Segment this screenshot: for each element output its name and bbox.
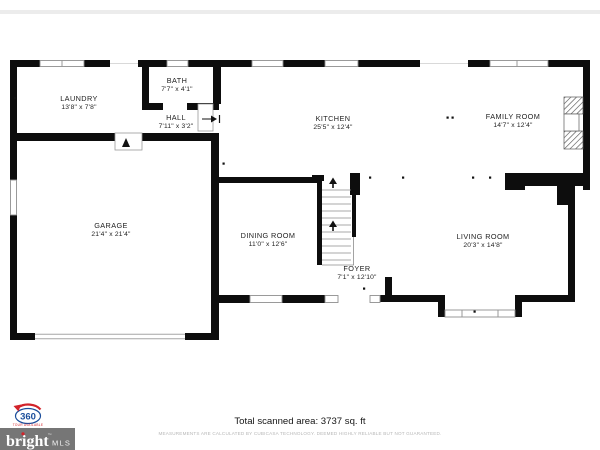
room-label-foyer: FOYER 7'1" x 12'10" xyxy=(337,264,377,281)
brand-dot xyxy=(21,432,24,435)
fireplace-icon xyxy=(564,97,583,149)
mls-text: MLS xyxy=(52,439,71,448)
bright-mls-logo: bright ™ MLS xyxy=(0,428,75,450)
wall-segment xyxy=(142,133,219,141)
room-label-kitchen: KITCHEN 25'5" x 12'4" xyxy=(313,114,353,131)
wall-segment xyxy=(515,295,522,317)
wall-segment xyxy=(350,173,360,195)
wall-segment xyxy=(10,133,115,141)
wall-segment xyxy=(358,60,420,67)
wall-segment xyxy=(557,186,575,205)
wall-segment xyxy=(583,60,590,190)
360-number: 360 xyxy=(20,412,36,423)
room-name: BATH xyxy=(167,76,188,85)
room-dimensions: 25'5" x 12'4" xyxy=(313,124,353,131)
door xyxy=(198,104,213,131)
wall-segment xyxy=(317,175,322,265)
window xyxy=(370,296,380,303)
total-area-text: Total scanned area: 3737 sq. ft xyxy=(234,416,366,427)
room-dimensions: 13'8" x 7'8" xyxy=(61,104,97,111)
room-label-garage: GARAGE 21'4" x 21'4" xyxy=(91,221,131,238)
wall-segment xyxy=(219,295,250,303)
wall-segment xyxy=(142,67,149,103)
floor-plan-image: LAUNDRY 13'8" x 7'8" BATH 7'7" x 4'1" HA… xyxy=(0,0,600,450)
floor-plan-page: LAUNDRY 13'8" x 7'8" BATH 7'7" x 4'1" HA… xyxy=(0,0,600,450)
wall-segment xyxy=(213,60,221,104)
360-label: TOUR AVAILABLE xyxy=(13,423,44,427)
room-label-living-room: LIVING ROOM 20'3" x 14'8" xyxy=(456,232,509,249)
wall-segment xyxy=(385,277,392,297)
wall-segment xyxy=(505,173,525,190)
room-dimensions: 21'4" x 21'4" xyxy=(91,231,131,238)
room-dimensions: 20'3" x 14'8" xyxy=(463,242,503,249)
room-name: LIVING ROOM xyxy=(456,232,509,241)
room-label-laundry: LAUNDRY 13'8" x 7'8" xyxy=(60,94,98,111)
wall-segment xyxy=(283,60,325,67)
disclaimer-text: MEASUREMENTS ARE CALCULATED BY CUBICASA … xyxy=(158,431,441,436)
room-label-family-room: FAMILY ROOM 14'7" x 12'4" xyxy=(486,112,540,129)
room-name: FAMILY ROOM xyxy=(486,112,540,121)
garage-door xyxy=(35,334,185,340)
room-dimensions: 7'7" x 4'1" xyxy=(161,86,193,93)
window xyxy=(490,61,548,67)
window xyxy=(325,296,338,303)
window xyxy=(250,296,282,303)
wall-segment xyxy=(568,205,575,295)
room-label-dining-room: DINING ROOM 11'0" x 12'6" xyxy=(241,231,296,248)
wall-segment xyxy=(211,133,219,340)
wall-segment xyxy=(352,195,356,237)
wall-segment xyxy=(142,103,163,110)
window xyxy=(11,180,17,215)
wall-segment xyxy=(10,215,17,340)
door xyxy=(115,133,142,150)
wall-segment xyxy=(282,295,325,303)
room-dimensions: 7'1" x 12'10" xyxy=(337,274,377,281)
360-tour-badge: 360 TOUR AVAILABLE xyxy=(13,405,44,427)
top-band xyxy=(0,10,600,14)
staircase xyxy=(322,178,354,266)
wall-stub-dots xyxy=(14,97,491,313)
room-name: HALL xyxy=(166,113,186,122)
room-label-bath: BATH 7'7" x 4'1" xyxy=(161,76,193,93)
wall-segment xyxy=(10,60,17,180)
window xyxy=(445,310,515,317)
wall-segment xyxy=(522,295,575,302)
stairs-direction-arrow xyxy=(329,221,337,228)
trademark: ™ xyxy=(48,432,52,437)
wall-segment xyxy=(10,333,35,340)
wall-segment xyxy=(138,60,167,67)
room-dimensions: 7'11" x 3'2" xyxy=(159,123,194,130)
window xyxy=(252,61,283,67)
door-direction-arrow xyxy=(211,116,217,123)
room-name: FOYER xyxy=(343,264,370,273)
room-name: GARAGE xyxy=(94,221,128,230)
wall-segment xyxy=(84,60,110,67)
room-label-hall: HALL 7'11" x 3'2" xyxy=(159,113,194,130)
wall-segment xyxy=(219,177,322,183)
wall-segment xyxy=(438,295,445,317)
room-dimensions: 11'0" x 12'6" xyxy=(249,241,288,248)
room-dimensions: 14'7" x 12'4" xyxy=(493,122,533,129)
wall-segment xyxy=(468,60,490,67)
room-name: DINING ROOM xyxy=(241,231,296,240)
brand-text: bright xyxy=(6,433,49,450)
room-name: KITCHEN xyxy=(316,114,351,123)
window xyxy=(167,61,188,67)
room-name: LAUNDRY xyxy=(60,94,98,103)
stairs-direction-arrow xyxy=(329,178,337,185)
window xyxy=(325,61,358,67)
